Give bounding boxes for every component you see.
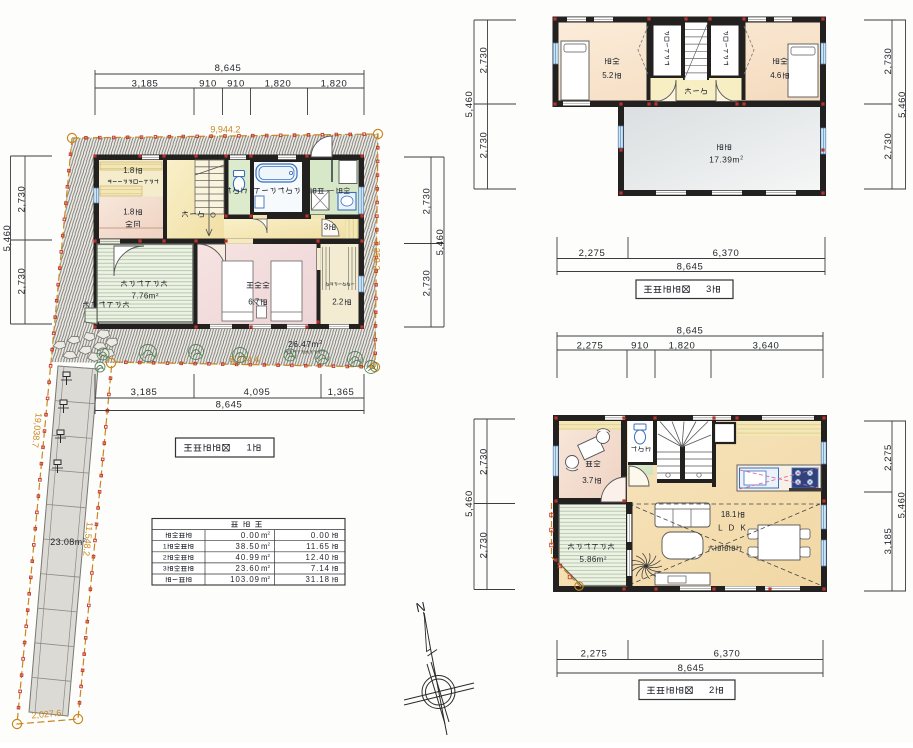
svg-text:2: 2 (604, 556, 607, 562)
svg-text:3: 3 (163, 566, 167, 573)
svg-text:3,185: 3,185 (131, 387, 158, 398)
svg-text:5,460: 5,460 (2, 225, 13, 252)
svg-text:910: 910 (631, 341, 649, 352)
svg-text:5,460: 5,460 (435, 229, 446, 256)
svg-text:5.2: 5.2 (602, 71, 614, 80)
svg-text:5,460: 5,460 (897, 492, 908, 519)
svg-text:2,275: 2,275 (579, 248, 606, 259)
svg-text:3,185: 3,185 (132, 79, 159, 90)
svg-text:2,730: 2,730 (479, 532, 490, 559)
svg-text:1.8: 1.8 (123, 166, 135, 175)
svg-text:1: 1 (247, 443, 252, 454)
svg-text:2: 2 (268, 553, 271, 558)
svg-text:3,185: 3,185 (883, 528, 894, 555)
svg-text:2: 2 (268, 575, 271, 580)
svg-text:31.18: 31.18 (305, 575, 330, 584)
svg-text:2: 2 (268, 564, 271, 569)
svg-text:8,645: 8,645 (677, 262, 704, 273)
svg-text:2,730: 2,730 (479, 132, 490, 159)
svg-text:5,460: 5,460 (897, 91, 908, 118)
svg-text:5,460: 5,460 (464, 490, 475, 517)
svg-text:2,730: 2,730 (883, 133, 894, 160)
svg-text:17.39m: 17.39m (709, 154, 740, 164)
svg-text:3.7: 3.7 (582, 476, 594, 485)
svg-text:2: 2 (156, 292, 159, 298)
svg-text:2,275: 2,275 (883, 444, 894, 471)
svg-text:3: 3 (706, 284, 711, 295)
svg-text:2: 2 (163, 555, 167, 562)
svg-text:2: 2 (268, 542, 271, 547)
svg-text:2: 2 (740, 156, 743, 162)
svg-text:2: 2 (319, 340, 322, 346)
svg-text:6.7: 6.7 (248, 298, 260, 307)
svg-text:2,730: 2,730 (17, 186, 28, 213)
svg-text:8,645: 8,645 (677, 326, 704, 337)
svg-text:0.00: 0.00 (241, 531, 260, 540)
svg-text:23.08m: 23.08m (50, 537, 82, 547)
svg-text:12.40: 12.40 (305, 553, 330, 562)
svg-text:103.09: 103.09 (230, 575, 260, 584)
svg-text:2,730: 2,730 (479, 448, 490, 475)
svg-text:2,730: 2,730 (883, 48, 894, 75)
svg-text:9,944.2: 9,944.2 (210, 125, 240, 135)
svg-text:2: 2 (709, 685, 714, 696)
svg-text:7.14: 7.14 (311, 564, 330, 573)
svg-text:2,730: 2,730 (422, 270, 433, 297)
svg-text:1,365: 1,365 (328, 387, 355, 398)
svg-text:2,730: 2,730 (479, 47, 490, 74)
svg-text:2: 2 (83, 538, 86, 544)
svg-text:38.50: 38.50 (235, 542, 260, 551)
svg-text:L D K: L D K (718, 524, 748, 533)
svg-text:910: 910 (199, 79, 217, 90)
svg-text:2,730: 2,730 (17, 268, 28, 295)
svg-text:6,370: 6,370 (714, 649, 741, 660)
svg-text:8,645: 8,645 (678, 663, 705, 674)
svg-text:4.6: 4.6 (770, 71, 782, 80)
svg-text:8,645: 8,645 (215, 63, 242, 74)
svg-text:40.99: 40.99 (235, 553, 260, 562)
svg-text:1,820: 1,820 (321, 79, 348, 90)
svg-text:8,645: 8,645 (216, 400, 243, 411)
svg-text:910: 910 (227, 79, 245, 90)
svg-text:2.2: 2.2 (332, 298, 344, 307)
svg-text:5,460: 5,460 (464, 91, 475, 118)
svg-text:2,275: 2,275 (577, 341, 604, 352)
svg-text:18.1: 18.1 (721, 510, 737, 519)
svg-text:0.00: 0.00 (311, 531, 330, 540)
svg-text:26.47m: 26.47m (288, 339, 319, 349)
svg-text:7,359.2: 7,359.2 (371, 240, 381, 270)
svg-text:1,820: 1,820 (265, 79, 292, 90)
svg-text:1,820: 1,820 (669, 341, 696, 352)
svg-text:23.60: 23.60 (235, 564, 260, 573)
svg-text:4,095: 4,095 (244, 387, 271, 398)
svg-text:2: 2 (268, 531, 271, 536)
svg-text:3,640: 3,640 (753, 341, 780, 352)
svg-text:2,275: 2,275 (581, 649, 608, 660)
svg-text:6,370: 6,370 (713, 248, 740, 259)
svg-text:7.76m: 7.76m (132, 292, 156, 301)
svg-text:5.86m: 5.86m (580, 555, 604, 564)
svg-text:3: 3 (324, 223, 329, 232)
svg-text:1: 1 (163, 544, 167, 551)
svg-text:1.8: 1.8 (123, 208, 135, 217)
svg-text:2,730: 2,730 (422, 188, 433, 215)
svg-text:11.65: 11.65 (306, 542, 330, 551)
